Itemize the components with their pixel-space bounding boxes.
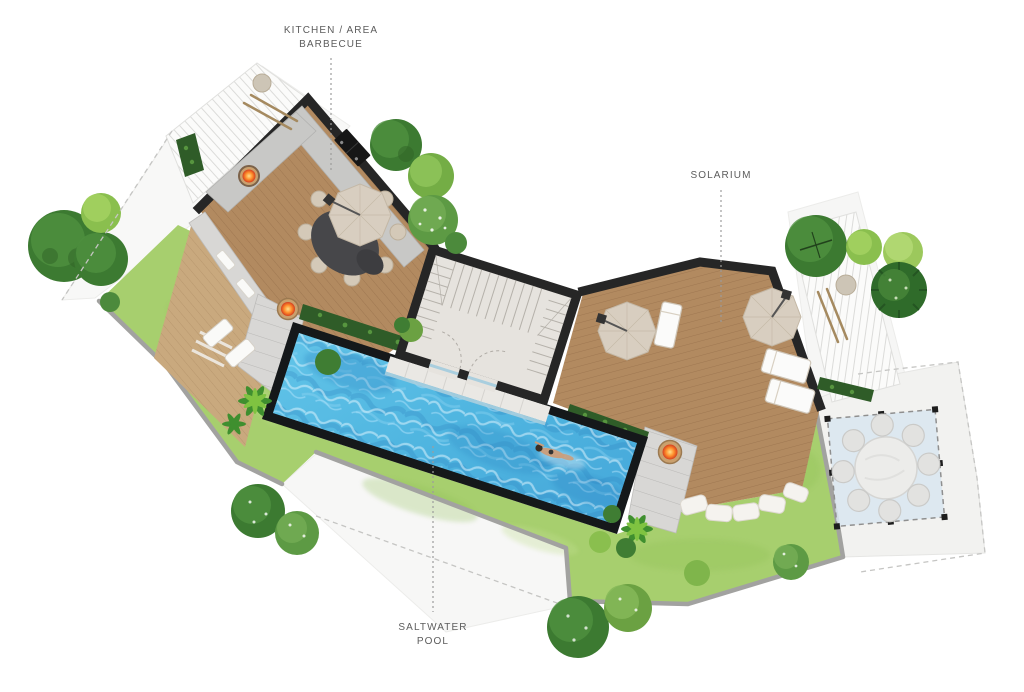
tree [81, 193, 121, 233]
bbq-firepit [239, 166, 259, 186]
tree [547, 596, 609, 658]
label-kitchen-barbecue: KITCHEN / AREA BARBECUE [231, 24, 431, 52]
label-kitchen-line1: KITCHEN / AREA [231, 24, 431, 38]
label-solarium: SOLARIUM [646, 169, 796, 183]
glass-dining-enclosure [824, 406, 948, 530]
side-table-right [836, 275, 856, 295]
label-pool-line1: SALTWATER [353, 621, 513, 635]
bush [773, 544, 809, 580]
bush [603, 505, 621, 523]
bush [684, 560, 710, 586]
pool-firepit-west [278, 299, 299, 320]
tree [785, 215, 847, 277]
label-solarium-line1: SOLARIUM [646, 169, 796, 183]
solarium-parasol-east [743, 288, 801, 346]
floor-plan-page: KITCHEN / AREA BARBECUE SOLARIUM SALTWAT… [0, 0, 1024, 692]
bush [100, 292, 120, 312]
tree [846, 229, 882, 265]
pool-firepit-east [659, 441, 682, 464]
bush [315, 349, 341, 375]
label-pool-line2: POOL [353, 635, 513, 649]
label-kitchen-line2: BARBECUE [231, 38, 431, 52]
bush [445, 232, 467, 254]
side-table-left [253, 74, 271, 92]
tree [408, 153, 454, 199]
tree [871, 262, 927, 318]
bush [275, 511, 319, 555]
label-saltwater-pool: SALTWATER POOL [353, 621, 513, 649]
tree [604, 584, 652, 632]
site-plan-svg [0, 0, 1024, 692]
